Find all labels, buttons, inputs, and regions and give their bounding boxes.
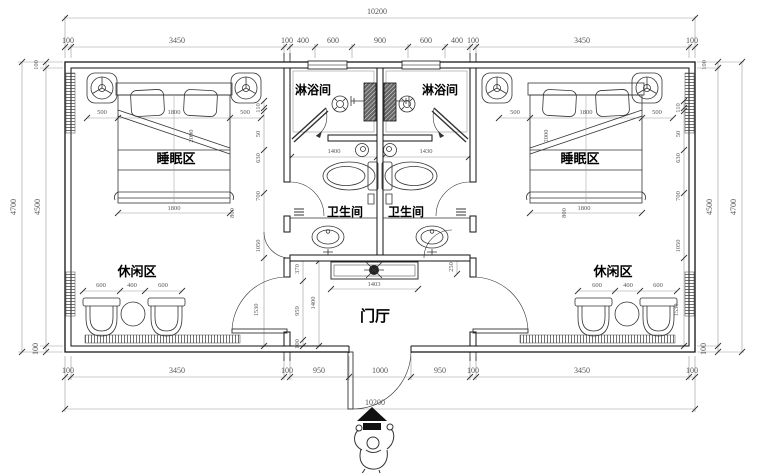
- svg-text:1800: 1800: [168, 205, 181, 212]
- shower-left-outline: [293, 71, 374, 132]
- svg-text:3450: 3450: [169, 36, 185, 45]
- floor-drain-right: [399, 96, 415, 112]
- svg-text:400: 400: [297, 36, 309, 45]
- svg-text:600: 600: [592, 282, 602, 289]
- label-shower-right: 淋浴间: [422, 82, 458, 97]
- label-shower-left: 淋浴间: [295, 82, 331, 97]
- wall-shower-south-left: [328, 135, 377, 141]
- shower-right-outline: [386, 71, 467, 132]
- floor-drain-left: [332, 96, 348, 112]
- side-table-right: [615, 302, 639, 326]
- svg-text:1430: 1430: [420, 148, 433, 155]
- svg-text:600: 600: [96, 282, 106, 289]
- armchair-left-2: [148, 298, 185, 336]
- svg-text:50: 50: [255, 131, 262, 138]
- svg-text:250: 250: [448, 262, 455, 272]
- svg-text:400: 400: [127, 282, 137, 289]
- svg-text:1800: 1800: [168, 109, 181, 116]
- person-figure: [355, 424, 394, 473]
- wall-hall-north: [290, 255, 470, 261]
- svg-text:1400: 1400: [310, 297, 317, 310]
- svg-text:370: 370: [294, 264, 301, 274]
- svg-text:900: 900: [374, 36, 386, 45]
- floor-plan-drawing: 10200 100 3450 100 400 600 900 600 400 1…: [0, 0, 760, 473]
- dim-bottom-overall: 10200: [365, 398, 385, 407]
- armchair-right-1: [575, 298, 612, 336]
- ceiling-fan-icon: [364, 262, 384, 278]
- svg-text:100: 100: [62, 36, 74, 45]
- door-stop-left: [294, 209, 304, 215]
- room-right: [473, 73, 677, 336]
- svg-text:500: 500: [240, 109, 250, 116]
- toilet-right: [382, 162, 437, 190]
- svg-text:110: 110: [675, 103, 682, 113]
- sprinkler-right-1: [482, 73, 512, 103]
- svg-text:100: 100: [699, 343, 708, 355]
- door-stop-right: [456, 209, 466, 215]
- label-wc-right: 卫生间: [388, 204, 424, 219]
- svg-text:950: 950: [434, 366, 446, 375]
- svg-text:100: 100: [33, 60, 40, 70]
- sprinkler-right-2: [632, 73, 662, 103]
- label-leisure-right: 休闲区: [592, 264, 632, 280]
- dim-left-overall: 4700: [9, 199, 18, 215]
- svg-text:100: 100: [294, 339, 301, 349]
- svg-text:110: 110: [255, 103, 262, 113]
- room-door-right: [473, 277, 528, 333]
- sink-left: [312, 226, 344, 255]
- svg-text:500: 500: [97, 109, 107, 116]
- dimension-text: 10200 100 3450 100 400 600 900 600 400 1…: [9, 7, 738, 407]
- armchair-right-2: [640, 298, 677, 336]
- svg-text:1000: 1000: [372, 366, 388, 375]
- svg-text:100: 100: [31, 343, 40, 355]
- entrance-jambs: [349, 346, 411, 353]
- bed-left: [114, 83, 233, 203]
- label-wc-left: 卫生间: [327, 204, 363, 219]
- svg-text:630: 630: [675, 153, 682, 163]
- svg-text:1800: 1800: [578, 205, 591, 212]
- label-hall: 门厅: [360, 307, 390, 325]
- shower-arm-left: [351, 96, 364, 106]
- wc-door-left-arc: [290, 182, 324, 216]
- svg-text:800: 800: [561, 208, 568, 218]
- wall-left-partition: [284, 68, 290, 182]
- svg-text:3450: 3450: [169, 366, 185, 375]
- wall-shower-south-right: [383, 135, 432, 141]
- svg-text:100: 100: [281, 36, 293, 45]
- svg-text:3450: 3450: [574, 366, 590, 375]
- vanity-door-arc-left: [264, 232, 290, 258]
- svg-text:700: 700: [255, 191, 262, 201]
- sprinkler-left-2: [231, 73, 261, 103]
- svg-text:50: 50: [675, 131, 682, 138]
- wc-door-right-arc: [436, 182, 470, 216]
- svg-text:950: 950: [313, 366, 325, 375]
- toilet-left: [323, 162, 378, 190]
- pipe-shaft-left: [364, 83, 376, 121]
- svg-text:959: 959: [294, 306, 301, 316]
- wall-right-partition: [470, 68, 476, 182]
- dim-right-overall: 4700: [729, 199, 738, 215]
- svg-text:400: 400: [623, 282, 633, 289]
- shower-door-left: [292, 108, 328, 142]
- svg-text:1050: 1050: [675, 240, 682, 253]
- svg-text:2000: 2000: [543, 130, 550, 143]
- svg-text:100: 100: [701, 60, 708, 70]
- svg-text:100: 100: [467, 366, 479, 375]
- tp-holder-left: [356, 144, 369, 157]
- shower-door-right: [432, 108, 468, 142]
- svg-text:1403: 1403: [368, 281, 381, 288]
- svg-text:100: 100: [686, 366, 698, 375]
- sink-right: [416, 226, 448, 255]
- svg-text:100: 100: [686, 36, 698, 45]
- sprinkler-left-1: [87, 73, 117, 103]
- dim-top-overall: 10200: [367, 7, 387, 16]
- svg-text:100: 100: [467, 36, 479, 45]
- core-area: [264, 71, 470, 279]
- svg-text:1530: 1530: [253, 304, 260, 317]
- svg-text:700: 700: [675, 191, 682, 201]
- svg-text:800: 800: [229, 208, 236, 218]
- svg-text:3450: 3450: [574, 36, 590, 45]
- floor-plan-canvas: 10200 100 3450 100 400 600 900 600 400 1…: [0, 0, 760, 473]
- side-table-left: [121, 302, 145, 326]
- svg-text:600: 600: [158, 282, 168, 289]
- svg-text:1800: 1800: [580, 109, 593, 116]
- svg-text:4500: 4500: [705, 199, 714, 215]
- svg-text:500: 500: [652, 109, 662, 116]
- svg-text:1400: 1400: [328, 148, 341, 155]
- svg-text:630: 630: [255, 153, 262, 163]
- svg-text:2000: 2000: [188, 130, 195, 143]
- pipe-shaft-right: [384, 83, 396, 121]
- svg-text:100: 100: [62, 366, 74, 375]
- svg-text:1530: 1530: [673, 304, 680, 317]
- label-sleep-left: 睡眠区: [156, 151, 195, 167]
- svg-text:600: 600: [653, 282, 663, 289]
- label-sleep-right: 睡眠区: [560, 151, 599, 167]
- armchair-left-1: [83, 298, 120, 336]
- label-leisure-left: 休闲区: [116, 264, 156, 280]
- tp-holder-right: [384, 144, 397, 157]
- svg-text:100: 100: [281, 366, 293, 375]
- svg-text:600: 600: [327, 36, 339, 45]
- svg-text:600: 600: [420, 36, 432, 45]
- svg-text:400: 400: [451, 36, 463, 45]
- svg-text:1050: 1050: [255, 240, 262, 253]
- svg-text:4500: 4500: [33, 199, 42, 215]
- svg-text:500: 500: [510, 109, 520, 116]
